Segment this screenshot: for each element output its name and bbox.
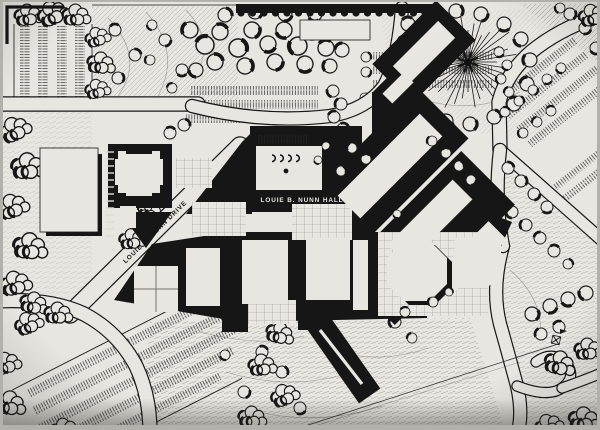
site-plan-map: LOUIE B. NUNN HALL LOUIE B. NUNN DRIVE [0, 0, 600, 430]
photo-frame: LOUIE B. NUNN HALL LOUIE B. NUNN DRIVE [0, 0, 600, 430]
photo-vignette [0, 0, 600, 430]
